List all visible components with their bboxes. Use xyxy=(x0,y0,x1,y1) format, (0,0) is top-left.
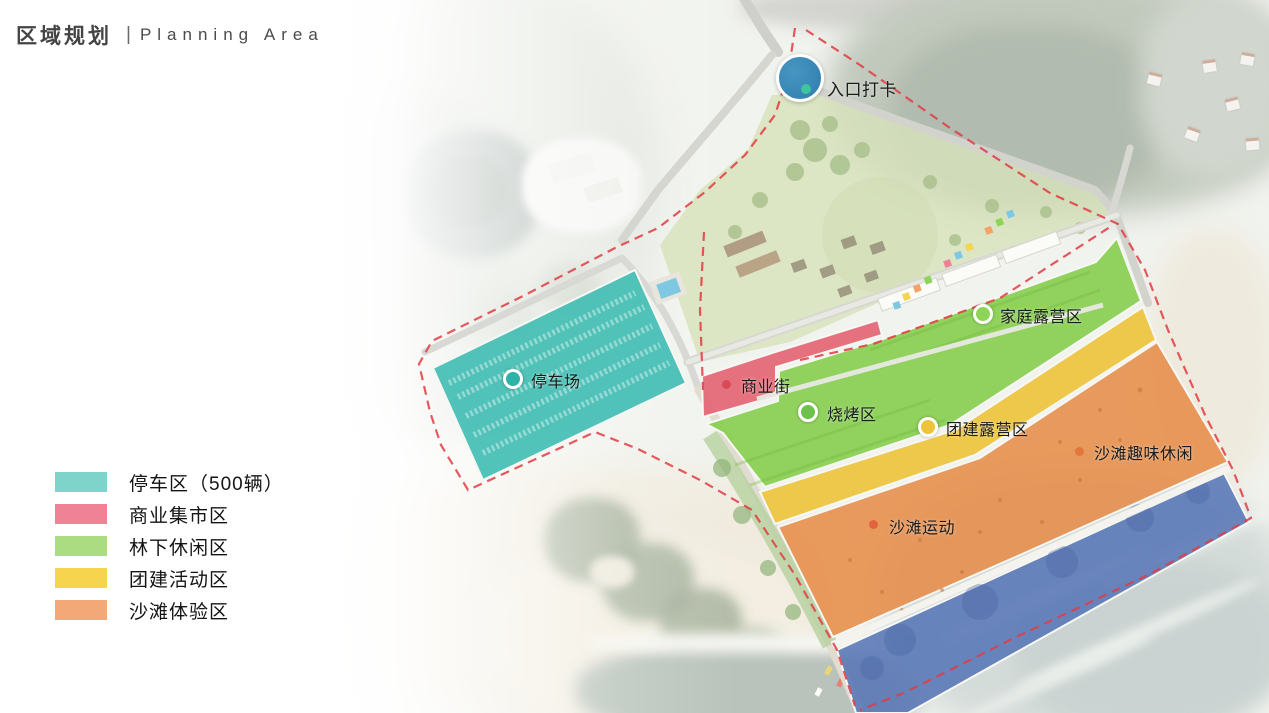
page-title: 区域规划 | Planning Area xyxy=(16,20,324,50)
beach-fun-marker xyxy=(1075,447,1084,456)
legend-label-beach-experience: 沙滩体验区 xyxy=(129,597,229,624)
legend: 停车区（500辆） 商业集市区 林下休闲区 团建活动区 沙滩体验区 xyxy=(55,472,284,620)
legend-item-commercial: 商业集市区 xyxy=(55,504,284,524)
entrance-label: 入口打卡 xyxy=(827,76,897,101)
entrance-checkin-marker xyxy=(776,54,824,102)
legend-label-forest-leisure: 林下休闲区 xyxy=(129,533,229,560)
parking-label: 停车场 xyxy=(531,368,581,392)
legend-label-commercial: 商业集市区 xyxy=(129,501,229,528)
beach-sport-marker xyxy=(869,520,878,529)
commercial-marker xyxy=(722,380,731,389)
legend-item-forest-leisure: 林下休闲区 xyxy=(55,536,284,556)
legend-item-beach-experience: 沙滩体验区 xyxy=(55,600,284,620)
title-separator: | xyxy=(126,24,131,46)
team-camp-label: 团建露营区 xyxy=(946,416,1029,440)
commercial-label: 商业街 xyxy=(741,373,791,397)
parking-marker xyxy=(503,369,523,389)
bbq-label: 烧烤区 xyxy=(827,401,877,425)
legend-swatch-team-activity xyxy=(55,568,107,588)
legend-label-team-activity: 团建活动区 xyxy=(129,565,229,592)
team-camp-marker xyxy=(918,417,938,437)
legend-item-parking: 停车区（500辆） xyxy=(55,472,284,492)
family-camp-marker xyxy=(973,304,993,324)
beach-fun-label: 沙滩趣味休闲 xyxy=(1094,440,1193,464)
legend-swatch-commercial xyxy=(55,504,107,524)
beach-sport-label: 沙滩运动 xyxy=(889,514,955,538)
legend-swatch-parking xyxy=(55,472,107,492)
title-zh: 区域规划 xyxy=(16,20,112,50)
planning-slide: 入口打卡 停车场 商业街 烧烤区 家庭露营区 团建露营区 沙滩趣味休闲 沙滩运动… xyxy=(0,0,1269,713)
legend-label-parking: 停车区（500辆） xyxy=(129,469,284,496)
legend-swatch-beach-experience xyxy=(55,600,107,620)
entrance-inner-dot xyxy=(801,84,811,94)
family-camp-label: 家庭露营区 xyxy=(1000,303,1083,327)
bbq-marker xyxy=(798,402,818,422)
legend-swatch-forest-leisure xyxy=(55,536,107,556)
title-en: Planning Area xyxy=(140,25,324,45)
legend-item-team-activity: 团建活动区 xyxy=(55,568,284,588)
